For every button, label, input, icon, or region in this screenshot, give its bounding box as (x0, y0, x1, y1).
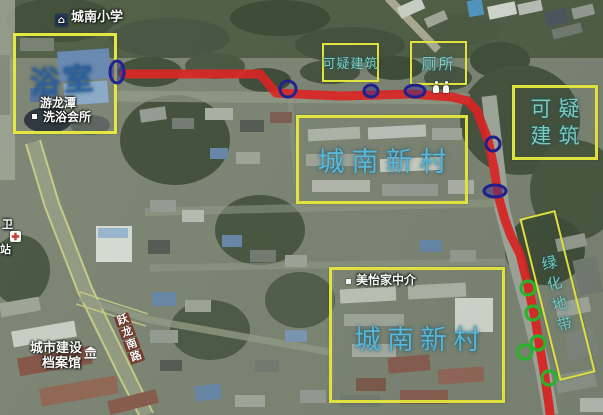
annotation-village-bottom-label: 城南新村 (354, 318, 486, 357)
health-station-label-bottom: 站 (0, 244, 11, 257)
archives-label-line2: 档案馆 (42, 357, 81, 372)
annotation-village-center-label: 城南新村 (318, 140, 454, 179)
annotation-box-suspicious-right: 可疑 建筑 (512, 85, 598, 160)
annotation-box-toilet: 厕所 (410, 41, 467, 85)
school-label: ⌂城南小学 (55, 11, 123, 27)
toilet-person-icon (433, 81, 439, 93)
agency-label: 美怡家中介 (356, 274, 416, 288)
annotation-box-suspicious-top: 可疑建筑 (322, 43, 379, 82)
agency-poi-dot (346, 279, 351, 284)
bathhouse-label-line2: 洗浴会所 (43, 111, 91, 125)
health-station-cross-icon (9, 230, 22, 243)
annotation-suspicious-top-label: 可疑建筑 (323, 53, 379, 72)
annotation-box-village-center: 城南新村 (296, 115, 468, 204)
archives-building-icon (83, 346, 98, 359)
annotation-bathhouse-note: 浴室 (29, 54, 98, 102)
toilet-figures-icon (433, 81, 449, 93)
school-icon: ⌂ (55, 14, 68, 27)
annotated-satellite-map: 浴室 可疑建筑 厕所 可疑 建筑 城南新村 城南新村 绿化地带 ⌂城南小学 游龙… (0, 0, 603, 415)
toilet-person-icon (443, 81, 449, 93)
bathhouse-label-line1: 游龙潭 (40, 97, 76, 111)
annotation-toilet-label: 厕所 (421, 53, 455, 74)
annotation-suspicious-right-line2: 建筑 (531, 123, 587, 149)
annotation-suspicious-right-line1: 可疑 (531, 96, 587, 122)
bathhouse-poi-dot (32, 114, 37, 119)
archives-label-line1: 城市建设 (30, 342, 82, 357)
